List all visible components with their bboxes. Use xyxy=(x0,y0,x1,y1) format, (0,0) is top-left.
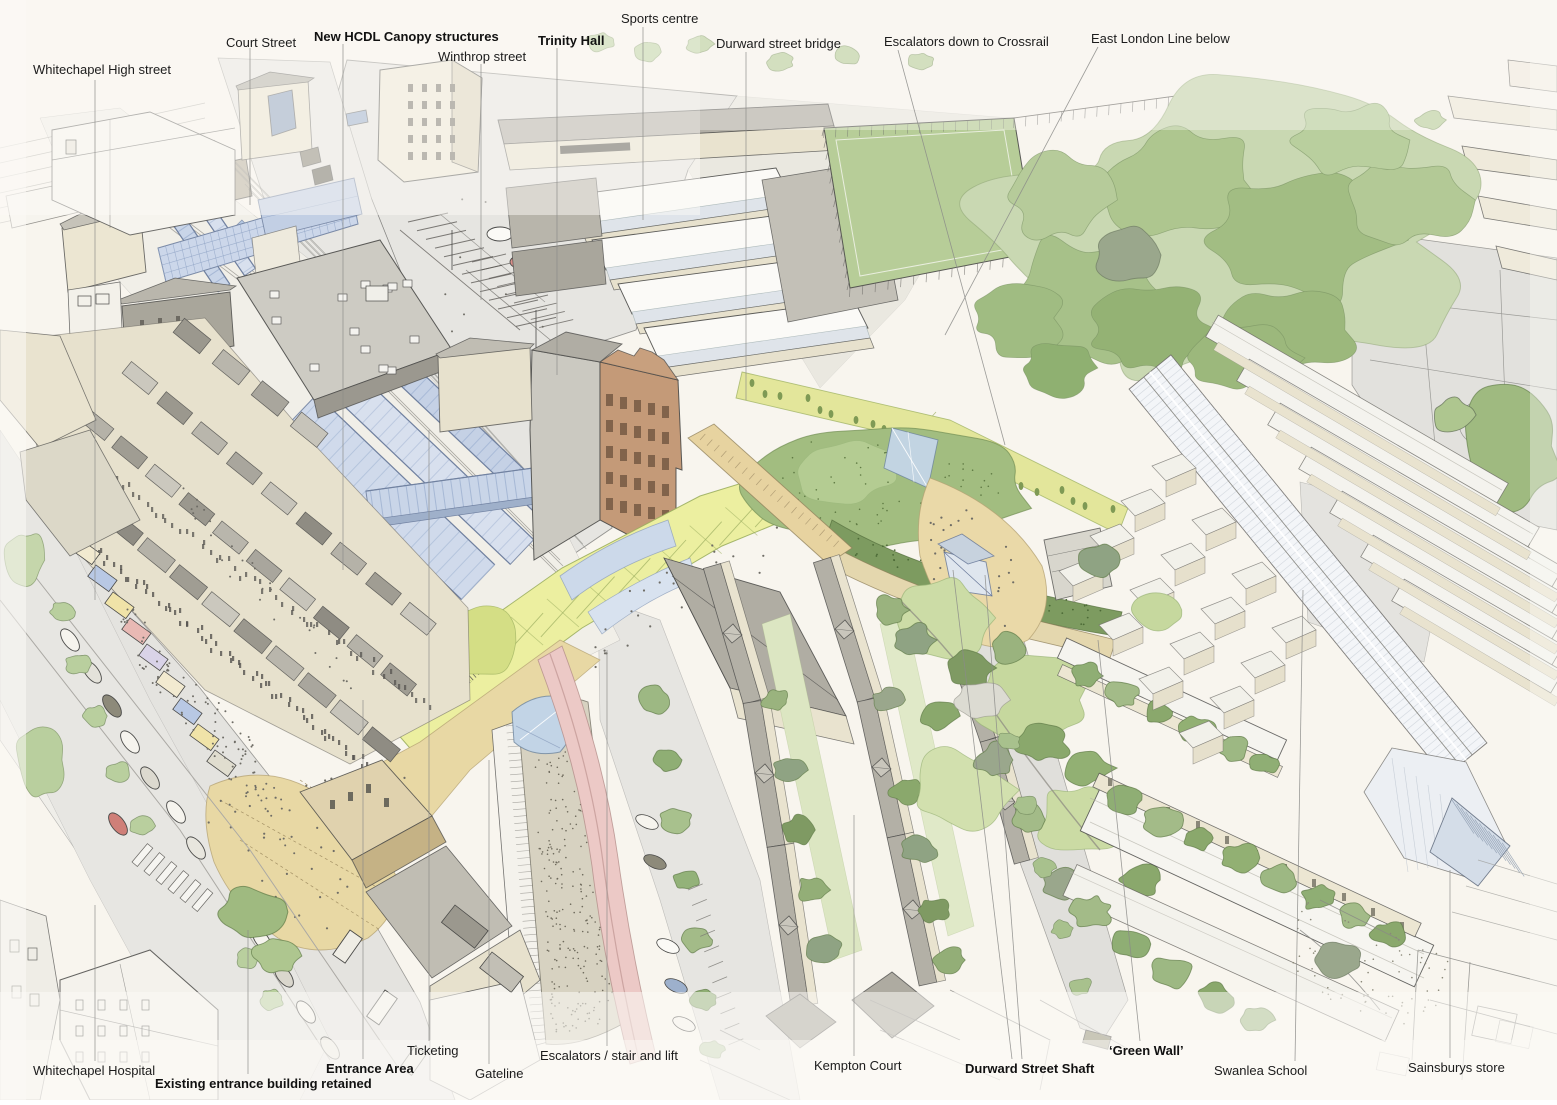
svg-text:Escalators / stair and lift: Escalators / stair and lift xyxy=(540,1048,678,1063)
svg-text:‘Green Wall’: ‘Green Wall’ xyxy=(1109,1043,1184,1058)
svg-text:Durward Street Shaft: Durward Street Shaft xyxy=(965,1061,1095,1076)
svg-text:New HCDL Canopy structures: New HCDL Canopy structures xyxy=(314,29,499,44)
svg-text:East London Line below: East London Line below xyxy=(1091,31,1230,46)
svg-text:Trinity Hall: Trinity Hall xyxy=(538,33,604,48)
svg-text:Whitechapel High street: Whitechapel High street xyxy=(33,62,171,77)
svg-text:Kempton Court: Kempton Court xyxy=(814,1058,902,1073)
svg-text:Sainsburys store: Sainsburys store xyxy=(1408,1060,1505,1075)
svg-text:Escalators down to Crossrail: Escalators down to Crossrail xyxy=(884,34,1049,49)
svg-text:Whitechapel Hospital: Whitechapel Hospital xyxy=(33,1063,155,1078)
svg-text:Court Street: Court Street xyxy=(226,35,296,50)
svg-text:Durward street bridge: Durward street bridge xyxy=(716,36,841,51)
svg-text:Winthrop street: Winthrop street xyxy=(438,49,527,64)
svg-text:Entrance Area: Entrance Area xyxy=(326,1061,414,1076)
svg-text:Swanlea School: Swanlea School xyxy=(1214,1063,1307,1078)
svg-text:Sports centre: Sports centre xyxy=(621,11,698,26)
svg-text:Gateline: Gateline xyxy=(475,1066,523,1081)
svg-text:Ticketing: Ticketing xyxy=(407,1043,459,1058)
svg-text:Existing entrance building ret: Existing entrance building retained xyxy=(155,1076,372,1091)
